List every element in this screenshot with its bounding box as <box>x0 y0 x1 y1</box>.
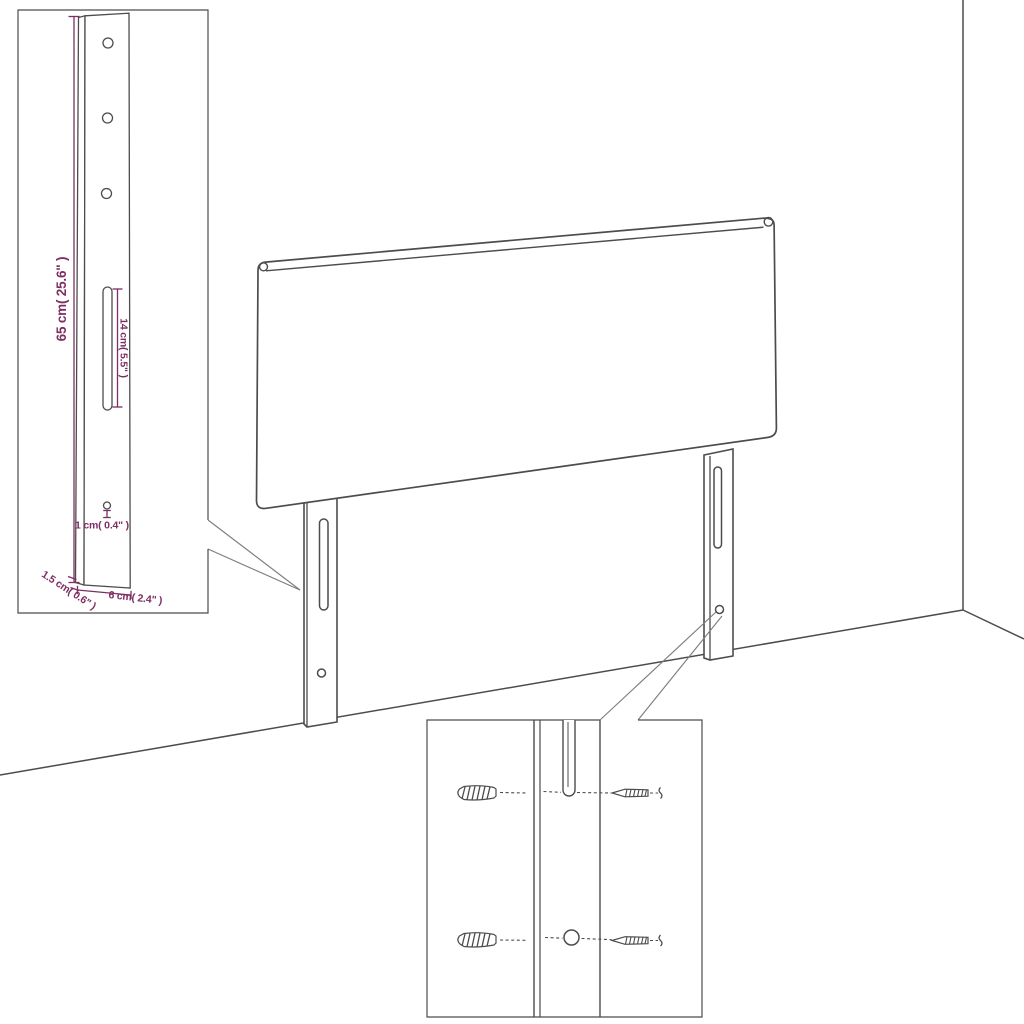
dimension-label-hole: 1 cm( 0.4" ) <box>75 520 129 532</box>
wall-anchor-icon <box>458 786 496 800</box>
right-leg <box>704 449 733 660</box>
diagram-canvas: 65 cm( 25.6" ) 14 cm( 5.5" ) 1 cm( 0.4" … <box>0 0 1024 1024</box>
inset-leg-slot <box>103 287 112 410</box>
headboard-panel <box>257 218 777 508</box>
callout-line <box>638 616 722 720</box>
inset-leg-hole-middle <box>103 113 113 123</box>
right-leg-slot <box>714 467 722 548</box>
right-leg-hole <box>716 606 724 614</box>
wall-anchor-icon <box>458 933 496 947</box>
mounting-leg-slot <box>563 720 575 796</box>
callout-line <box>600 612 716 720</box>
left-leg <box>304 488 337 727</box>
left-leg-slot <box>320 519 329 610</box>
mounting-leg-hole <box>564 930 579 945</box>
dimension-label-height: 65 cm( 25.6" ) <box>54 257 69 342</box>
left-leg-hole <box>318 669 326 677</box>
leg-detail-inset: 65 cm( 25.6" ) 14 cm( 5.5" ) 1 cm( 0.4" … <box>18 10 208 613</box>
callout-lines-left <box>208 520 300 590</box>
floor-line-right <box>963 610 1024 639</box>
headboard <box>257 218 777 509</box>
inset-leg-hole-top <box>103 38 113 48</box>
mounting-detail-inset <box>427 720 702 1017</box>
inset-leg-small-hole <box>104 502 111 509</box>
dimension-label-slot: 14 cm( 5.5" ) <box>118 318 130 378</box>
diagram-stage: 65 cm( 25.6" ) 14 cm( 5.5" ) 1 cm( 0.4" … <box>0 0 1024 1024</box>
inset-leg-hole-lower <box>102 189 112 199</box>
